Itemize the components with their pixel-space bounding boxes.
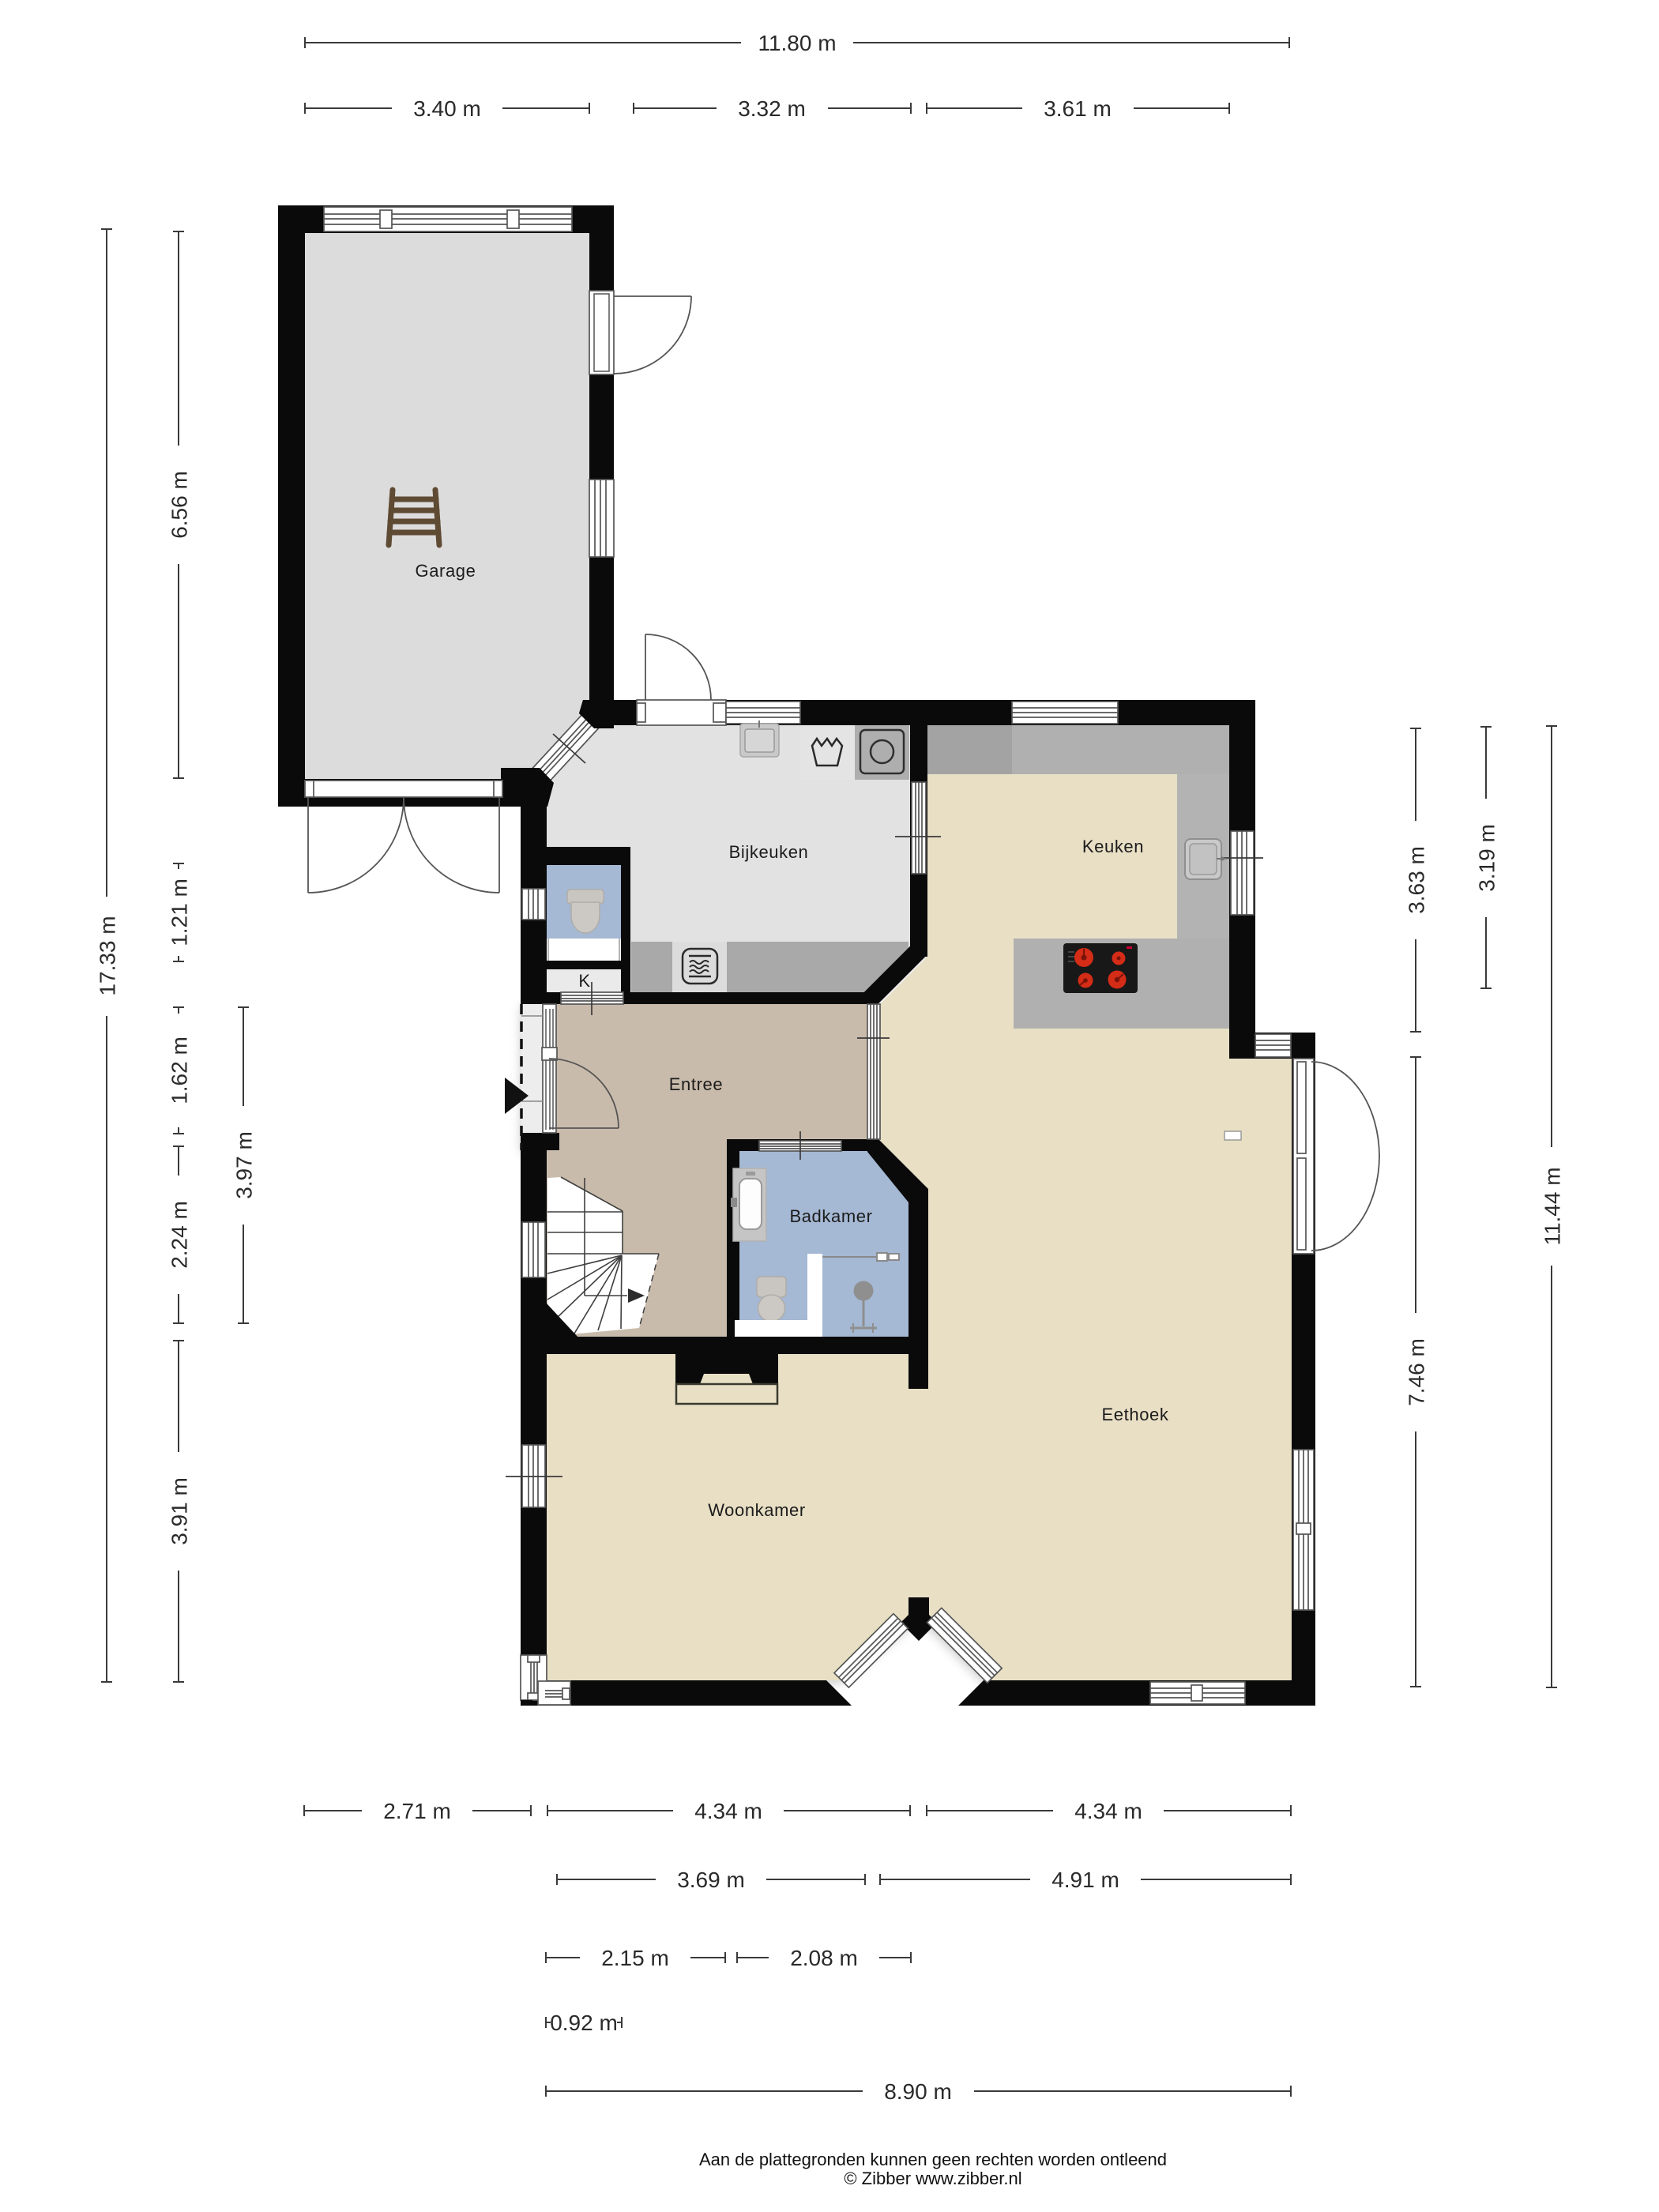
svg-text:3.91 m: 3.91 m	[167, 1477, 192, 1545]
svg-text:11.44 m: 11.44 m	[1540, 1167, 1565, 1245]
svg-text:Aan de plattegronden kunnen ge: Aan de plattegronden kunnen geen rechten…	[699, 2150, 1167, 2169]
svg-text:2.15 m: 2.15 m	[601, 1946, 669, 1970]
svg-text:8.90 m: 8.90 m	[884, 2079, 952, 2104]
svg-text:© Zibber www.zibber.nl: © Zibber www.zibber.nl	[844, 2169, 1021, 2188]
svg-text:3.40 m: 3.40 m	[413, 96, 481, 121]
svg-text:1.62 m: 1.62 m	[167, 1036, 192, 1104]
svg-text:Bijkeuken: Bijkeuken	[729, 842, 809, 862]
svg-text:4.34 m: 4.34 m	[1074, 1799, 1142, 1823]
svg-text:Garage: Garage	[416, 561, 476, 581]
svg-text:Eethoek: Eethoek	[1102, 1405, 1169, 1424]
svg-text:3.32 m: 3.32 m	[738, 96, 806, 121]
svg-text:2.71 m: 2.71 m	[383, 1799, 451, 1823]
svg-text:3.61 m: 3.61 m	[1044, 96, 1112, 121]
svg-text:3.63 m: 3.63 m	[1405, 846, 1429, 914]
svg-text:3.69 m: 3.69 m	[677, 1868, 745, 1892]
svg-text:17.33 m: 17.33 m	[96, 916, 120, 995]
svg-text:1.21 m: 1.21 m	[167, 878, 192, 946]
svg-text:K: K	[578, 971, 590, 991]
svg-text:2.24 m: 2.24 m	[167, 1201, 192, 1269]
svg-text:4.34 m: 4.34 m	[694, 1799, 762, 1823]
svg-text:3.97 m: 3.97 m	[232, 1131, 257, 1199]
svg-text:0.92 m: 0.92 m	[550, 2011, 618, 2035]
svg-text:Badkamer: Badkamer	[789, 1206, 872, 1226]
svg-text:3.19 m: 3.19 m	[1475, 824, 1499, 892]
svg-text:6.56 m: 6.56 m	[167, 471, 192, 539]
svg-text:Entree: Entree	[669, 1074, 723, 1094]
svg-text:2.08 m: 2.08 m	[790, 1946, 858, 1970]
svg-text:11.80 m: 11.80 m	[758, 31, 836, 55]
svg-text:4.91 m: 4.91 m	[1051, 1868, 1119, 1892]
svg-text:Keuken: Keuken	[1082, 837, 1144, 856]
svg-text:Woonkamer: Woonkamer	[708, 1500, 806, 1520]
svg-text:7.46 m: 7.46 m	[1405, 1338, 1429, 1406]
